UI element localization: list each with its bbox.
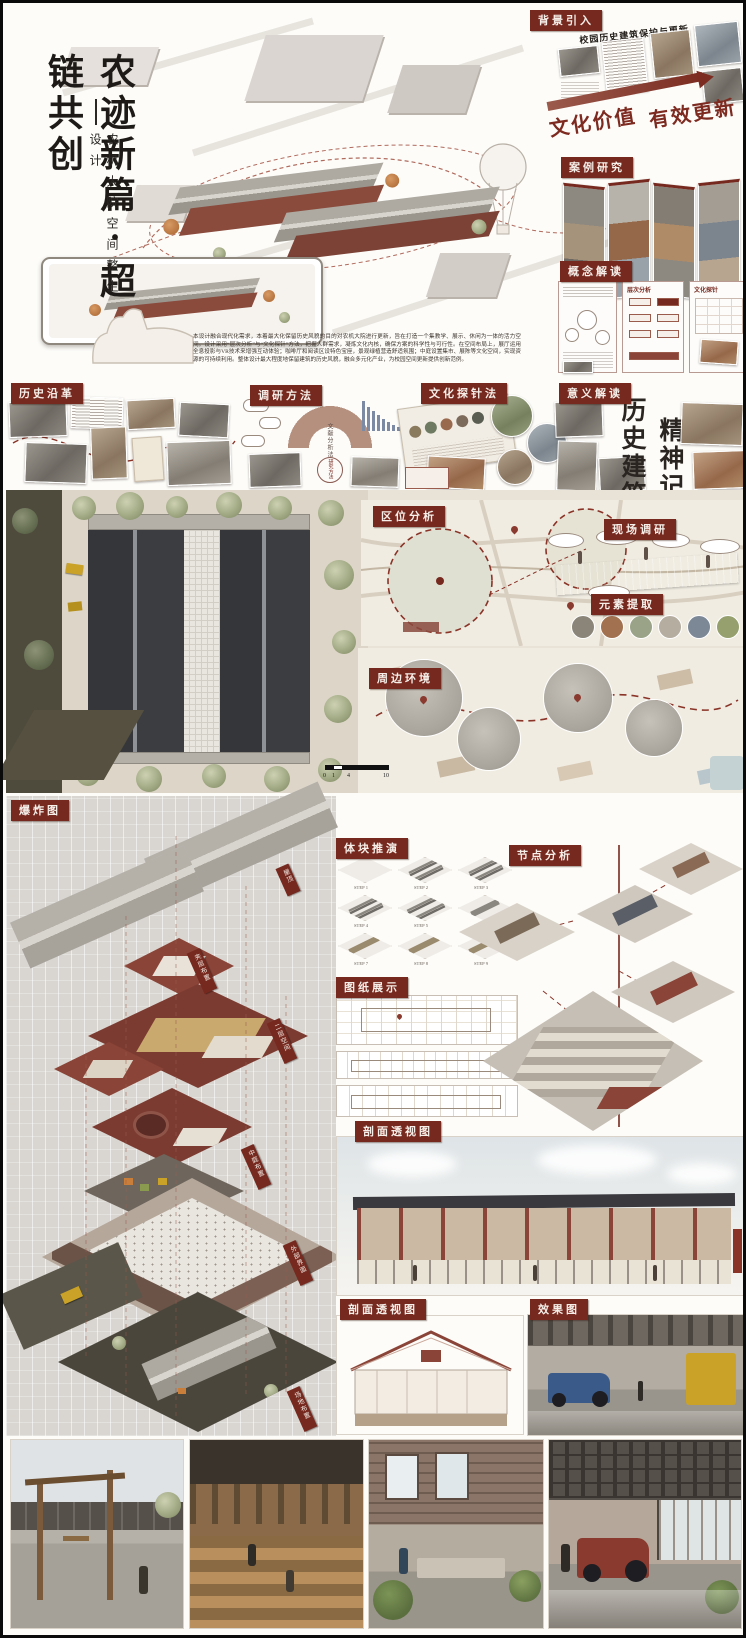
figure <box>139 1566 148 1594</box>
background-photo <box>694 21 742 67</box>
section-header-history: 历史沿革 <box>11 383 83 404</box>
scale-bar-segments <box>325 765 389 770</box>
swing-seat <box>63 1536 89 1541</box>
concept-photo <box>563 361 593 373</box>
element-sample <box>629 615 653 639</box>
node-analysis <box>423 841 746 1131</box>
truss-ceiling <box>549 1440 741 1498</box>
probe-sample-dot <box>440 418 454 432</box>
surround-callout <box>626 700 682 756</box>
scale-tick: 1 <box>332 773 335 779</box>
scale-bar: 0 1 4 10 <box>323 765 393 783</box>
render-figure <box>638 1381 643 1401</box>
concept-bubble <box>565 328 579 342</box>
element-sample <box>600 615 624 639</box>
section-header-render: 效果图 <box>530 1299 588 1320</box>
probe-collage <box>399 395 571 491</box>
figure <box>286 1570 294 1592</box>
background-photo <box>650 29 695 79</box>
massing-step-caption: STEP 4 <box>354 923 368 928</box>
floor-reflection <box>549 1590 741 1628</box>
methods-hub: 研究方法 <box>317 457 343 483</box>
methods-bubble <box>259 417 281 429</box>
probe-book <box>699 339 739 366</box>
section-header-case-study: 案例研究 <box>561 157 633 178</box>
methods-bar-chart <box>361 395 401 435</box>
title-dash <box>95 99 97 125</box>
ahp-title: 层次分析 <box>627 285 651 294</box>
node-house <box>612 894 658 926</box>
section-perspective-1 <box>336 1136 746 1296</box>
tree <box>72 496 96 520</box>
section-interior <box>357 1208 731 1260</box>
probe-title: 文化探针 <box>694 285 718 294</box>
meaning-photo <box>692 450 745 490</box>
history-photo <box>166 440 231 486</box>
plant <box>509 1570 541 1602</box>
speech-bubble <box>548 533 584 548</box>
window <box>385 1454 419 1500</box>
section-header-concept: 概念解读 <box>560 261 632 282</box>
ahp-flowbox <box>629 352 679 360</box>
meaning-photo <box>680 402 743 446</box>
ahp-flowbox <box>629 314 651 322</box>
history-photo <box>178 402 230 439</box>
tree <box>268 496 292 520</box>
probe-sample-dot <box>471 411 485 425</box>
glazed-wall <box>657 1500 741 1560</box>
section-header-location: 区位分析 <box>373 506 445 527</box>
concept-panel-probe: 文化探针 <box>689 281 746 373</box>
tree <box>116 492 144 520</box>
methods-photo <box>350 456 399 488</box>
tree <box>279 312 290 323</box>
ahp-flowbox <box>629 330 651 338</box>
tree <box>136 766 162 792</box>
ahp-flowbox <box>657 314 679 322</box>
farm-machine-icon <box>68 601 83 611</box>
history-photo <box>24 442 87 484</box>
element-sample <box>687 615 711 639</box>
wood-frame-post <box>107 1470 113 1600</box>
tree <box>318 500 344 526</box>
masterplan-courtyard <box>184 530 220 752</box>
probe-photo-round <box>497 449 533 485</box>
poster-subtitle: 农机大院空间整生设计 <box>87 133 121 313</box>
section-header-elements: 元素提取 <box>591 594 663 615</box>
plant <box>373 1580 413 1620</box>
tractor-wheel <box>583 1564 601 1582</box>
tractor-wheel <box>625 1560 647 1582</box>
methods-photo <box>248 452 301 488</box>
ahp-flowbox <box>657 330 679 338</box>
survey-figure <box>644 547 648 560</box>
tree <box>166 496 188 518</box>
update-arrow-head-icon <box>696 68 715 89</box>
final-render-courtyard <box>11 1440 183 1628</box>
masterplan <box>6 490 368 793</box>
tractor-wheel <box>552 1393 566 1407</box>
concept-bubble <box>577 310 597 330</box>
history-document-photo <box>132 436 165 482</box>
section-header-section-b: 剖面透视图 <box>340 1299 426 1320</box>
survey-figure <box>706 555 710 568</box>
concept-panels: 层次分析 文化探针 <box>558 281 746 377</box>
section-header-drawings: 图纸展示 <box>336 977 408 998</box>
farm-machine-icon <box>65 563 83 575</box>
surround-water <box>710 756 744 790</box>
section-figure <box>533 1265 537 1281</box>
section-header-exploded: 爆炸图 <box>11 800 69 821</box>
meaning-photo <box>556 440 598 491</box>
meaning-photo <box>554 400 603 438</box>
massing-step-tile <box>338 857 392 883</box>
node-house <box>672 852 710 879</box>
render-photo <box>528 1315 746 1435</box>
bookshelf-wall <box>190 1484 363 1524</box>
tree <box>24 640 54 670</box>
context-block <box>387 65 481 113</box>
tree <box>332 630 356 654</box>
tree <box>264 766 290 792</box>
node-house <box>494 912 540 944</box>
render-floor-reflection <box>528 1411 746 1435</box>
methods-bubble <box>241 435 265 447</box>
probe-sample-dot <box>409 425 423 439</box>
ahp-flowbox <box>629 298 651 306</box>
tractor-wheel <box>592 1391 608 1407</box>
massing-step-caption: STEP 7 <box>354 961 368 966</box>
section-header-probe: 文化探针法 <box>421 383 507 404</box>
surround-callout <box>458 708 520 770</box>
node-house <box>650 972 698 1006</box>
section-figure <box>413 1265 417 1281</box>
location-map-label-box <box>403 622 439 632</box>
tree <box>216 492 242 518</box>
tree <box>263 290 275 302</box>
concept-panel-ahp: 层次分析 <box>622 281 684 373</box>
red-tractor <box>577 1538 649 1578</box>
probe-note <box>405 467 449 489</box>
concept-panel-campus <box>558 281 617 373</box>
figure <box>561 1544 570 1572</box>
window <box>435 1452 469 1500</box>
section-header-meaning: 意义解读 <box>559 383 631 404</box>
methods-hub-label: 研究方法 <box>327 459 334 481</box>
element-sample <box>716 615 740 639</box>
tree <box>324 560 354 590</box>
history-portrait-photo <box>90 426 128 479</box>
ahp-flowbox <box>657 298 679 306</box>
tree <box>155 1492 181 1518</box>
massing-step-caption: STEP 1 <box>354 885 368 890</box>
tree <box>202 764 226 788</box>
masterplan-south-wing <box>88 752 310 764</box>
section-header-nodes: 节点分析 <box>509 845 581 866</box>
render-machine-yellow <box>686 1353 736 1405</box>
concept-bubble <box>595 330 610 345</box>
final-render-workspace <box>369 1440 543 1628</box>
masterplan-roof-east <box>220 530 310 752</box>
tree <box>324 695 352 723</box>
work-table <box>417 1558 505 1578</box>
section-header-section-a: 剖面透视图 <box>355 1121 441 1142</box>
massing-step-tile <box>338 933 392 959</box>
figure <box>399 1548 408 1574</box>
history-photo <box>126 398 176 430</box>
element-sample <box>571 615 595 639</box>
element-circles <box>571 611 746 645</box>
background-photo <box>558 45 601 77</box>
history-collage <box>7 397 237 489</box>
section-header-surround: 周边环境 <box>369 668 441 689</box>
section-perspective-2 <box>336 1315 524 1435</box>
wood-frame-post <box>37 1480 43 1600</box>
cloud <box>367 1151 457 1177</box>
cloud <box>537 1145 657 1175</box>
section-header-massing: 体块推演 <box>336 838 408 859</box>
section-figure <box>653 1265 657 1281</box>
element-sample <box>658 615 682 639</box>
scale-tick: 4 <box>347 773 350 779</box>
final-render-machine-hall <box>549 1440 741 1628</box>
probe-kit-grid <box>695 298 743 334</box>
history-photo <box>8 400 67 438</box>
context-block <box>244 35 383 101</box>
figure <box>248 1544 256 1566</box>
section-header-methods: 调研方法 <box>250 385 322 406</box>
design-poster: 农迹新篇·超链共创 农机大院空间整生设计 本设计融合现代化需求，本着最大化保留历… <box>0 0 746 1638</box>
methods-diagram: 文献分析法 研究方法 <box>239 395 404 489</box>
survey-figure <box>578 551 582 564</box>
section-red-core <box>733 1229 742 1273</box>
intro-paragraph: 本设计融合现代化需求，本着最大化保留历史风貌的目的对农机大院进行更新，旨在打造一… <box>193 334 521 378</box>
final-render-steps-library <box>190 1440 363 1628</box>
stepped-seating <box>190 1536 363 1628</box>
speech-bubble <box>700 539 740 554</box>
tree <box>384 173 400 189</box>
tree <box>12 508 38 534</box>
section-building <box>353 1195 735 1287</box>
render-tractor-blue <box>548 1373 610 1403</box>
gable-section-drawing <box>337 1316 525 1436</box>
concept-text-lines <box>563 287 613 297</box>
scale-tick: 0 <box>323 773 326 779</box>
cloud <box>667 1163 737 1185</box>
section-header-background: 背景引入 <box>530 10 602 31</box>
section-header-survey: 现场调研 <box>604 519 676 540</box>
probe-sample-dot <box>424 421 438 435</box>
massing-step-tile <box>338 895 392 921</box>
scale-tick: 10 <box>383 773 389 779</box>
probe-sample-dot <box>455 414 469 428</box>
